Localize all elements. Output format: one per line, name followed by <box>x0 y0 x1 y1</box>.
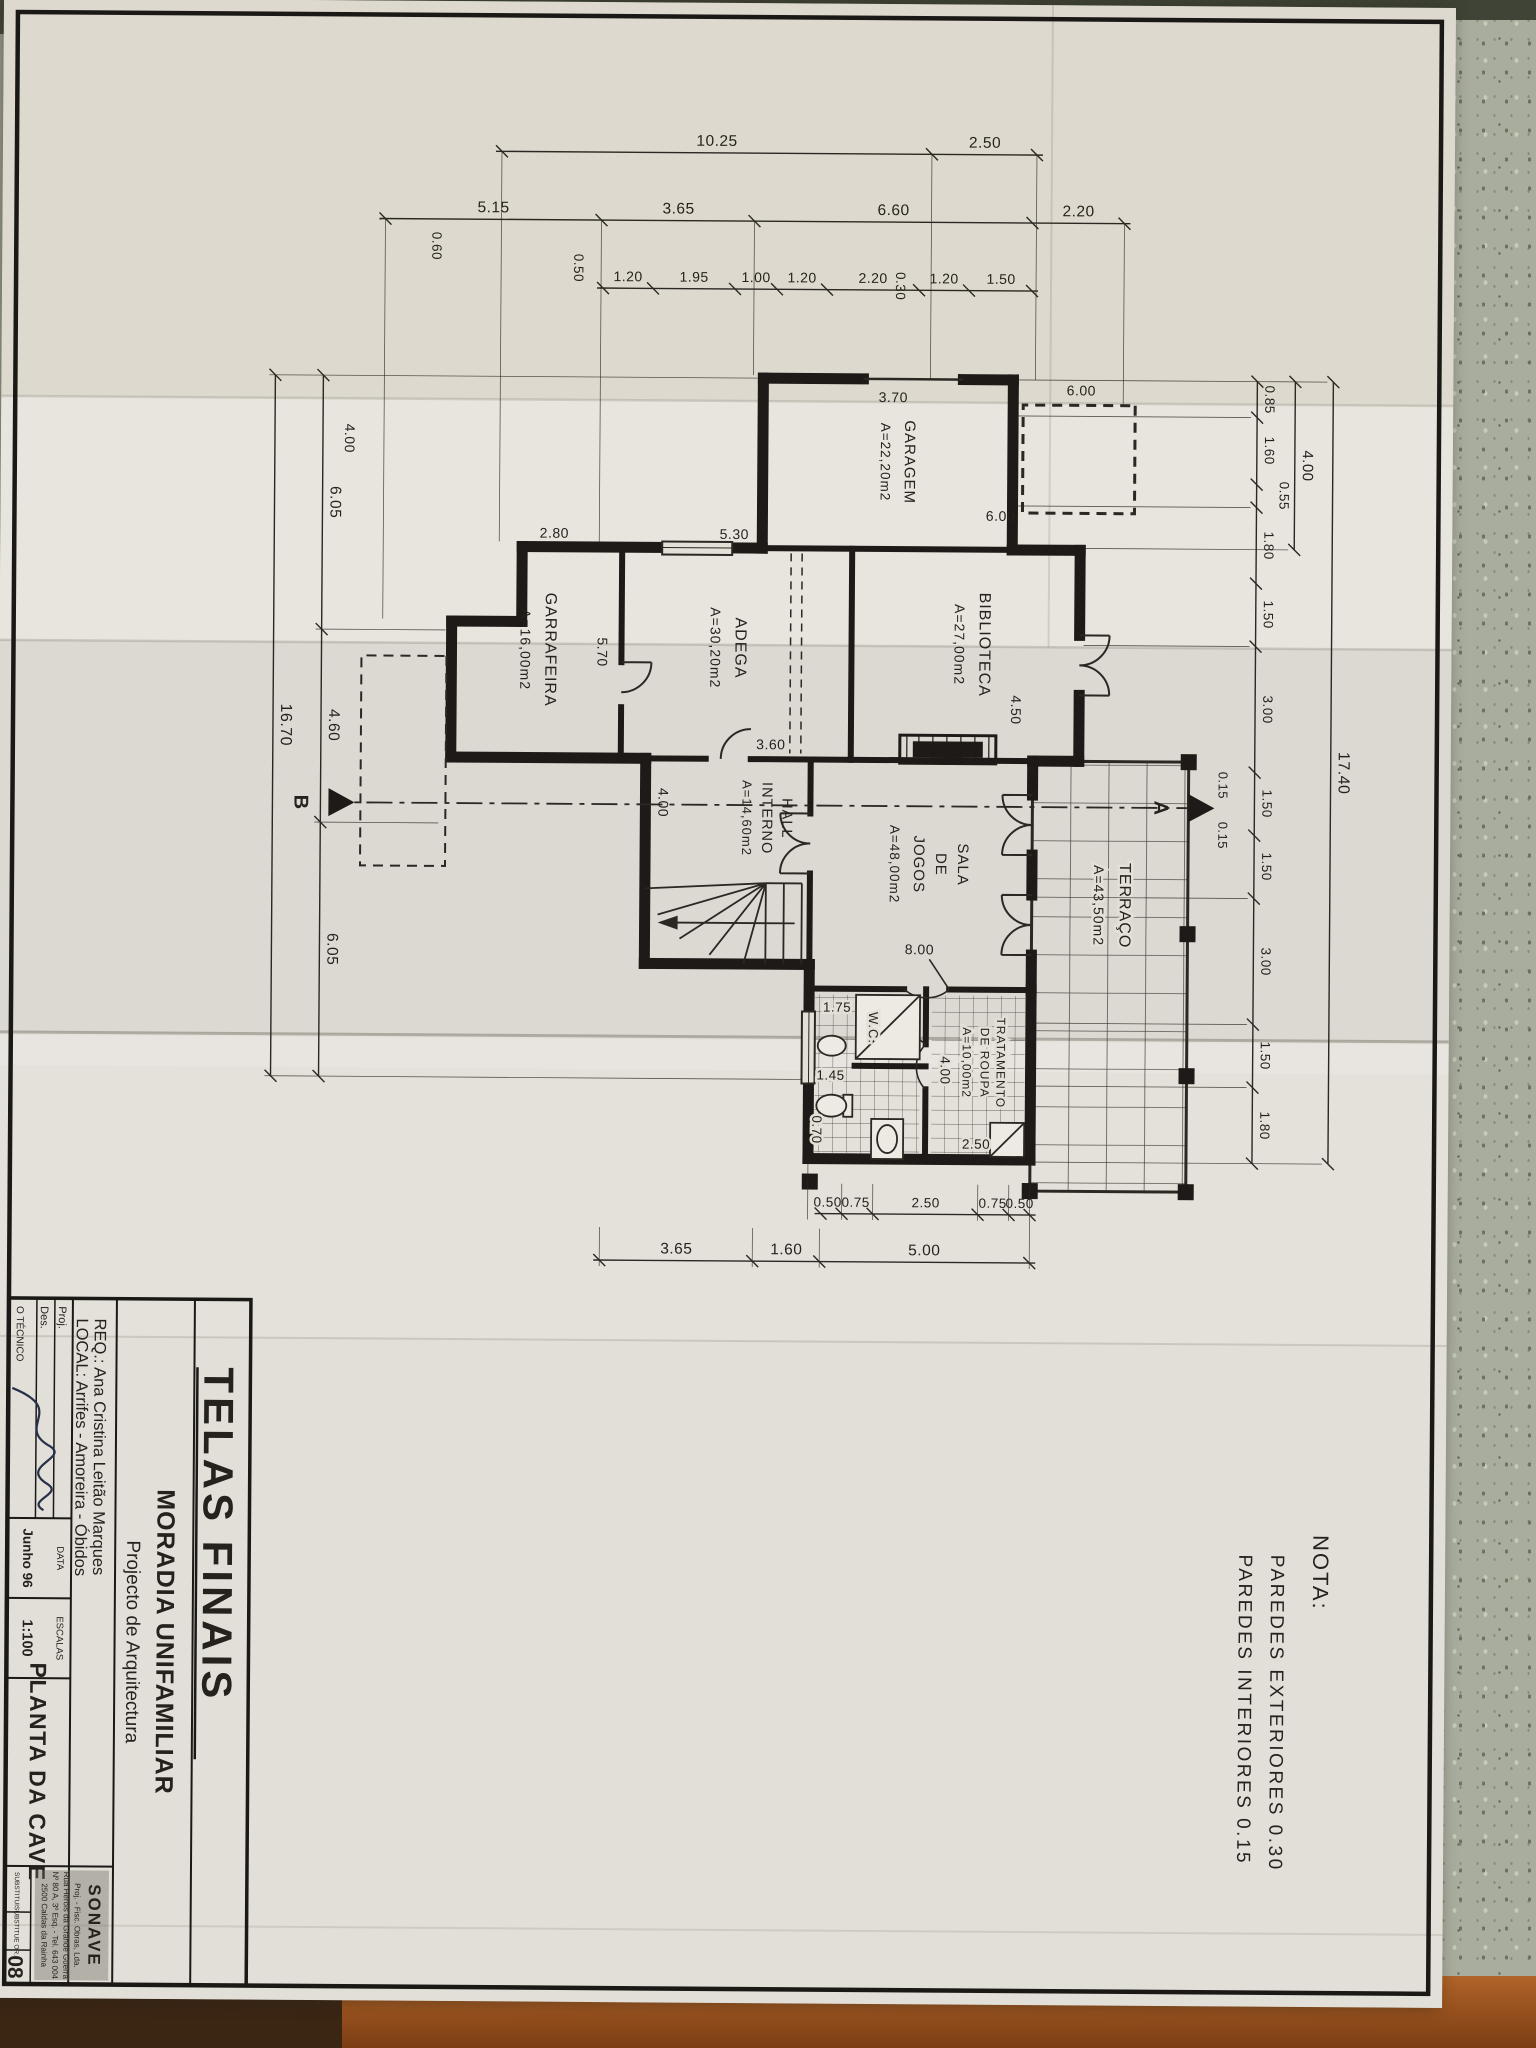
dim-label: 6.05 <box>326 486 343 518</box>
bidet <box>818 1036 846 1056</box>
dim-label: 4.00 <box>342 424 358 453</box>
dim-label: 1.95 <box>679 269 708 285</box>
terrace-pillar <box>1178 1184 1194 1200</box>
titleblock-drawing-title: PLANTA DA CAVE <box>24 1663 52 1882</box>
dim-label: 5.00 <box>908 1242 940 1259</box>
dim-label: 1.60 <box>770 1241 802 1258</box>
drawing-sheet: A B GARAGEM A=22,20m2 BIBLIOTECA A=27,00… <box>0 0 1456 2008</box>
dim-label: 1.60 <box>1262 437 1277 465</box>
room-label-garagem: GARAGEM <box>901 420 919 504</box>
floor-plan-drawing: A B GARAGEM A=22,20m2 BIBLIOTECA A=27,00… <box>0 0 1456 2008</box>
room-label-sala-2: DE <box>932 853 949 876</box>
dim-label: 0.50 <box>571 254 586 282</box>
dim-label: 2.50 <box>962 1137 990 1152</box>
dim-label: 0.70 <box>809 1115 824 1143</box>
titleblock-data-value: Junho 96 <box>20 1528 35 1588</box>
dim-label: 17.40 <box>1335 752 1352 795</box>
titleblock-subtitle: Projecto de Arquitectura <box>121 1540 143 1743</box>
room-area-garagem: A=22,20m2 <box>878 423 894 502</box>
room-area-biblioteca: A=27,00m2 <box>951 604 968 685</box>
room-area-garrafeira: A=16,00m2 <box>517 609 534 690</box>
titleblock-escala-value: 1:100 <box>18 1619 34 1656</box>
note-title: NOTA: <box>1308 1535 1334 1611</box>
section-label-b: B <box>289 795 311 810</box>
dim-label: 2.50 <box>969 135 1001 152</box>
dim-label: 4.00 <box>655 788 671 817</box>
dim-label: 1.45 <box>816 1068 844 1083</box>
titleblock-escalas-label: ESCALAS <box>53 1616 64 1660</box>
dim-label: 1.50 <box>986 271 1015 287</box>
dim-label: 0.15 <box>1215 772 1230 799</box>
note-line-1: PAREDES EXTERIORES 0.30 <box>1264 1555 1287 1872</box>
titleblock-local: LOCAL: Arrifes - Amoreira - Óbidos <box>71 1318 92 1576</box>
titleblock-substitui-label: SUBSTITUI <box>13 1872 20 1906</box>
dim-label: 3.65 <box>662 200 694 217</box>
dim-label: 3.00 <box>1258 948 1273 976</box>
dim-label: 0.85 <box>1262 386 1277 414</box>
room-label-tratamento-1: TRATAMENTO <box>993 1017 1008 1108</box>
dim-label: 1.20 <box>787 269 816 285</box>
note-line-2: PAREDES INTERIORES 0.15 <box>1232 1554 1255 1865</box>
titleblock-proj-label: Proj. <box>56 1306 68 1329</box>
toilet <box>816 1095 846 1117</box>
dim-label: 1.50 <box>1259 853 1274 881</box>
dim-label: 6.05 <box>323 933 340 965</box>
room-label-hall-1: HALL <box>778 798 794 838</box>
room-area-terraco: A=43,50m2 <box>1090 865 1107 946</box>
sheet-number: 08 <box>3 1955 26 1979</box>
dim-label: 0.30 <box>893 272 908 300</box>
stamp-name: SONAVE <box>84 1884 104 1967</box>
dim-label: 1.50 <box>1258 1042 1273 1070</box>
dim-label: 2.20 <box>1062 203 1094 220</box>
dim-label: 6.00 <box>1067 382 1096 398</box>
dim-label: 0.55 <box>1276 482 1291 510</box>
titleblock-project: MORADIA UNIFAMILIAR <box>149 1489 179 1795</box>
stamp-line-4: 2500 Caldas da Rainha <box>39 1883 49 1967</box>
dim-label: 0.60 <box>429 232 444 260</box>
dim-label: 1.20 <box>929 270 958 286</box>
dim-label: 0.50 <box>813 1195 841 1210</box>
room-label-tratamento-2: DE ROUPA <box>977 1028 991 1098</box>
dim-label: 3.65 <box>660 1240 692 1257</box>
dim-label: 5.70 <box>594 637 610 666</box>
dim-label: 2.50 <box>911 1195 939 1210</box>
terrace-pillar <box>802 1173 818 1189</box>
dim-label: 2.80 <box>540 525 569 541</box>
dim-label: 1.50 <box>1261 601 1276 629</box>
dim-label: 4.60 <box>325 709 342 741</box>
titleblock-req: REQ.: Ana Cristina Leitão Marques <box>89 1319 109 1576</box>
room-label-sala-1: SALA <box>954 843 971 885</box>
dim-label: 4.00 <box>937 1056 952 1084</box>
dim-label: 16.70 <box>277 704 294 747</box>
terrace-pillar <box>1181 754 1197 770</box>
dim-label: 5.15 <box>477 199 509 216</box>
dim-label: 1.00 <box>741 269 770 285</box>
dim-label: 0.15 <box>1215 822 1230 849</box>
room-label-sala-3: JOGOS <box>910 835 927 893</box>
dim-label: 3.70 <box>879 389 908 405</box>
dim-label: 1.80 <box>1261 532 1276 560</box>
terrace-pillar <box>1179 926 1195 942</box>
titleblock-header: TELAS FINAIS <box>193 1367 242 1702</box>
dim-label: 4.50 <box>1008 695 1024 724</box>
dim-label: 6.60 <box>877 202 909 219</box>
room-label-adega: ADEGA <box>731 617 748 678</box>
room-label-biblioteca: BIBLIOTECA <box>975 593 993 697</box>
dim-label: 1.50 <box>1259 790 1274 818</box>
dim-label: 3.60 <box>756 736 785 752</box>
titleblock-des-label: Des. <box>38 1306 50 1329</box>
stamp-line-1: Proj. - Fisc. Obras, Lda. <box>72 1883 82 1968</box>
dim-label: 0.75 <box>978 1196 1006 1211</box>
room-area-sala: A=48,00m2 <box>887 825 903 904</box>
dim-label: 3.00 <box>1260 696 1275 724</box>
room-label-wc: W.C. <box>866 1012 881 1044</box>
dim-label: 4.00 <box>1299 450 1316 481</box>
company-stamp: SONAVE Proj. - Fisc. Obras, Lda. Rua Her… <box>34 1870 109 1981</box>
dim-label: 10.25 <box>696 133 737 150</box>
room-area-hall: A=14,60m2 <box>739 780 755 856</box>
room-label-terraco: TERRAÇO <box>1115 863 1133 948</box>
photo-scene: A B GARAGEM A=22,20m2 BIBLIOTECA A=27,00… <box>0 0 1536 2048</box>
dim-label: 1.80 <box>1257 1111 1272 1139</box>
stamp-line-2: Rua Heróis da Grande Guerra <box>61 1872 71 1980</box>
dim-label: 6.00 <box>986 508 1015 524</box>
garage-door <box>863 379 963 380</box>
section-label-a: A <box>1149 801 1171 816</box>
terrace-pillar <box>1178 1068 1194 1084</box>
dim-label: 5.30 <box>720 526 749 542</box>
room-label-hall-2: INTERNO <box>758 782 775 854</box>
titleblock-substituido-label: SUBSTITUE OR. <box>12 1906 19 1956</box>
dim-label: 2.20 <box>858 270 887 286</box>
stamp-line-3: Nº 80 A, 3º Esq. - Tel. 643 004 <box>50 1871 60 1979</box>
dim-label: 0.75 <box>841 1195 869 1210</box>
room-label-garrafeira: GARRAFEIRA <box>541 593 559 707</box>
room-area-adega: A=30,20m2 <box>707 607 724 688</box>
dim-label: 1.75 <box>823 1000 851 1015</box>
room-area-tratamento: A=10,00m2 <box>959 1027 973 1098</box>
titleblock-data-label: DATA <box>54 1546 65 1571</box>
dim-label: 1.20 <box>613 268 642 284</box>
dim-label: 8.00 <box>905 941 934 957</box>
dim-label: 0.50 <box>1005 1196 1033 1211</box>
